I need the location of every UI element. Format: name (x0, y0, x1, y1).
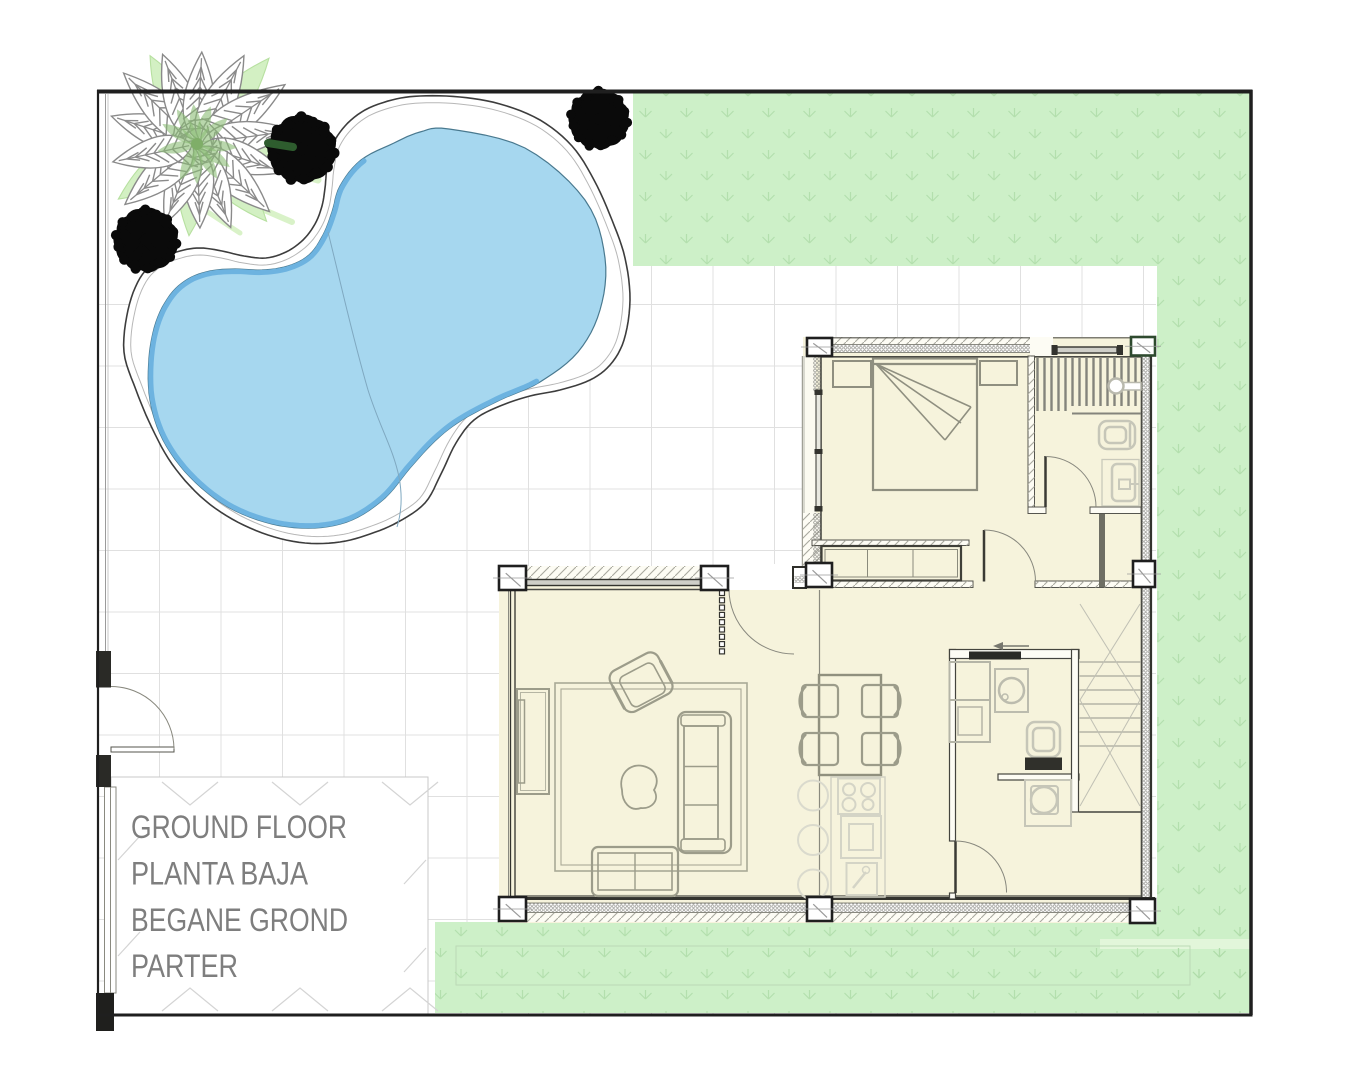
svg-text:PARTER: PARTER (131, 948, 238, 984)
svg-text:PLANTA BAJA: PLANTA BAJA (131, 856, 309, 892)
svg-text:BEGANE GROND: BEGANE GROND (131, 902, 348, 938)
svg-text:GROUND FLOOR: GROUND FLOOR (131, 809, 347, 845)
